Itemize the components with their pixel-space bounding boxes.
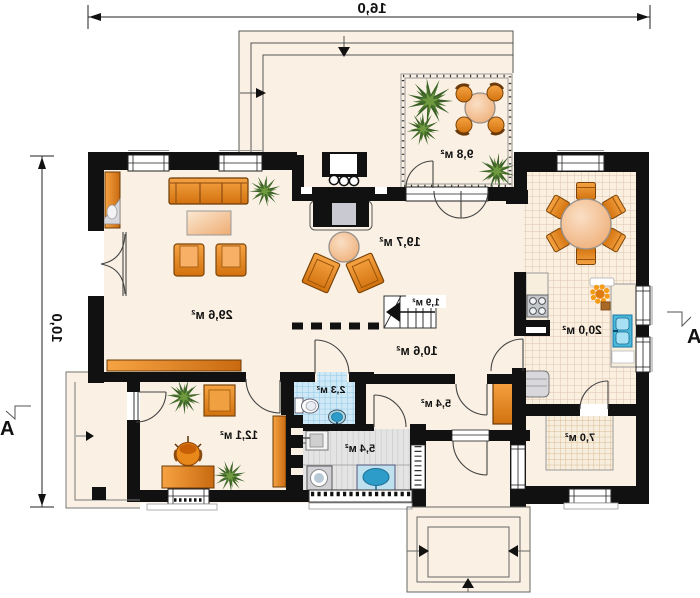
svg-text:19,7 м²: 19,7 м²	[379, 235, 420, 249]
svg-text:10,0: 10,0	[48, 313, 65, 342]
svg-text:2,3 м²: 2,3 м²	[316, 384, 345, 396]
svg-text:1,9 м²: 1,9 м²	[412, 298, 440, 309]
svg-text:A: A	[0, 418, 14, 440]
svg-text:7,0 м²: 7,0 м²	[565, 432, 595, 444]
svg-text:5,4 м²: 5,4 м²	[421, 398, 451, 410]
svg-text:12,1 м²: 12,1 м²	[220, 430, 258, 442]
svg-text:29,6 м²: 29,6 м²	[191, 308, 232, 322]
svg-text:5,4 м²: 5,4 м²	[345, 443, 375, 455]
svg-text:16,0: 16,0	[357, 0, 386, 17]
svg-text:20,0 м²: 20,0 м²	[562, 323, 602, 337]
svg-text:A: A	[687, 326, 700, 348]
svg-text:9,8 м²: 9,8 м²	[441, 147, 474, 161]
svg-text:10,6 м²: 10,6 м²	[396, 344, 437, 358]
